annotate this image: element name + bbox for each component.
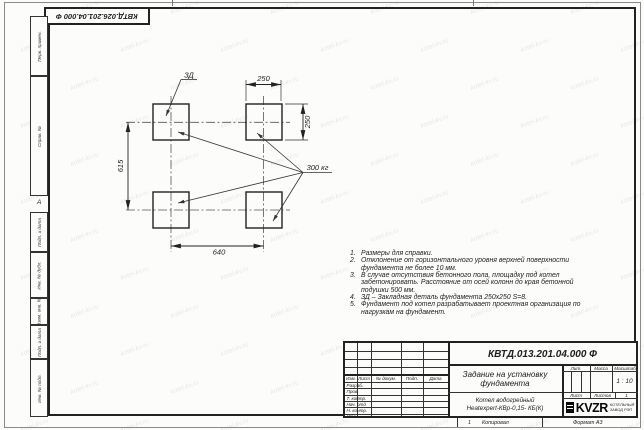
load-leaders [178, 132, 332, 221]
note-line: забетонировать. Расстояние от осей колон… [350, 279, 581, 286]
footer-sheet-number: 1 [468, 420, 471, 426]
footer-divider [457, 418, 458, 427]
kvzr-logo-text: KVZR [576, 401, 608, 415]
drawing-sheet: kotel-kv.rukotel-kv.rukotel-kv.rukotel-k… [0, 0, 644, 430]
title-block: Изм. Лист № докум. Подп. Дата Разраб. Пр… [343, 341, 638, 418]
extension-lines [246, 80, 308, 140]
col-header-data: Дата [423, 376, 448, 381]
dim-text-bottom-640: 640 [213, 248, 226, 257]
footer-format-label: Формат А3 [573, 420, 603, 426]
embed-detail-label: ЗД [184, 71, 194, 80]
note-line: 5.Фундамент под котел разрабатывает прое… [350, 301, 581, 308]
col-header-dokum: № докум. [371, 376, 401, 381]
row-razrab: Разраб. [347, 383, 364, 388]
footer-divider [542, 418, 543, 427]
header-masshtab: Масштаб [612, 366, 638, 371]
kvzr-logo-subtitle: КОТЕЛЬНЫЙ ЗАВОД РЭП [610, 403, 635, 412]
load-label: 300 кг [307, 163, 329, 172]
row-nach-otd: Нач. отд [347, 402, 366, 407]
row-n-kontr: Н. контр. [347, 408, 368, 413]
dim-text-top-250: 250 [256, 74, 270, 83]
col-header-podp: Подп. [401, 376, 423, 381]
note-line: 2.Отклонение от горизонтального уровня в… [350, 257, 581, 264]
dim-text-right-250: 250 [303, 115, 312, 129]
row-t-kontr: Т. контр. [347, 396, 367, 401]
notes-list: 1.Размеры для справки. 2.Отклонение от г… [350, 250, 581, 316]
note-line: фундамента не более 10 мм. [350, 265, 581, 272]
row-utv: Утв. [347, 414, 357, 419]
note-line: подушки 500 мм. [350, 287, 581, 294]
row-prov: Пров. [347, 389, 359, 394]
drawing-title: Задание на установку фундамента [448, 364, 562, 393]
document-designation: КВТД.013.201.04.000 Ф [448, 343, 637, 365]
note-line: нагрузкам на фундамент. [350, 309, 581, 316]
col-header-list: Лист [357, 376, 371, 381]
kvzr-logo-icon [566, 402, 574, 413]
header-massa: Масса [590, 366, 612, 371]
dim-text-left-615: 615 [116, 159, 125, 172]
kvzr-logo: KVZR КОТЕЛЬНЫЙ ЗАВОД РЭП [563, 398, 637, 417]
scale-value: 1 : 10 [612, 371, 637, 392]
header-lit: Лит. [562, 366, 590, 371]
product-name: Котел водогрейный Heatexpert-КВр-0,15- К… [448, 392, 562, 417]
col-header-izm: Изм. [345, 376, 357, 381]
footer-kopiroval-label: Копировал [482, 420, 509, 426]
